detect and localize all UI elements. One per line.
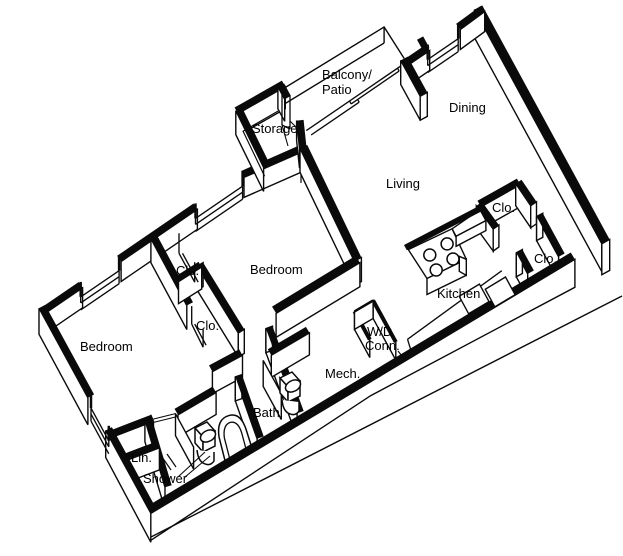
svg-text:Bath: Bath bbox=[253, 405, 280, 420]
svg-text:Clo.: Clo. bbox=[196, 318, 219, 333]
svg-text:Kitchen: Kitchen bbox=[437, 286, 480, 301]
svg-text:Bedroom: Bedroom bbox=[80, 339, 133, 354]
svg-text:Bedroom: Bedroom bbox=[250, 262, 303, 277]
svg-text:Lin.: Lin. bbox=[131, 450, 152, 465]
svg-text:Shower: Shower bbox=[143, 471, 188, 486]
svg-text:W/D: W/D bbox=[367, 324, 392, 339]
svg-text:Dining: Dining bbox=[449, 100, 486, 115]
svg-text:Clo.: Clo. bbox=[492, 200, 515, 215]
svg-text:Living: Living bbox=[386, 176, 420, 191]
svg-text:Patio: Patio bbox=[322, 82, 352, 97]
svg-text:Conn.: Conn. bbox=[365, 338, 400, 353]
svg-text:Clo.: Clo. bbox=[176, 263, 199, 278]
svg-text:Balcony/: Balcony/ bbox=[322, 67, 372, 82]
svg-text:Clo.: Clo. bbox=[534, 251, 557, 266]
svg-text:Storage: Storage bbox=[252, 121, 298, 136]
svg-text:Mech.: Mech. bbox=[325, 366, 360, 381]
